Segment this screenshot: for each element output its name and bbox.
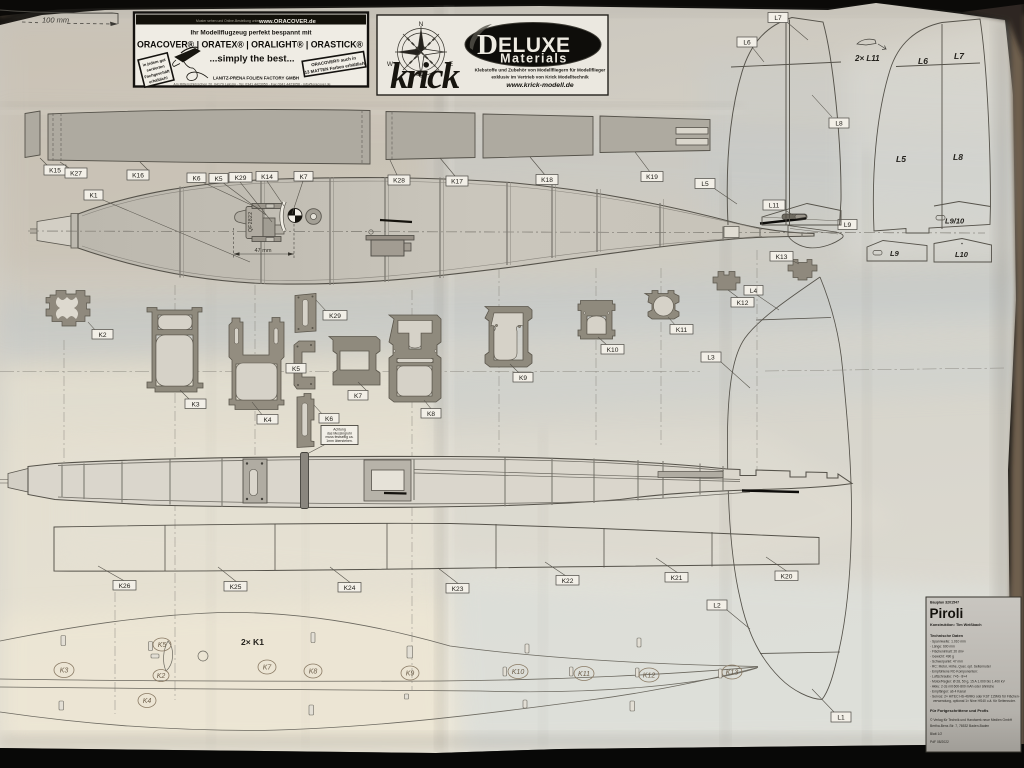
svg-text:L5: L5 [701, 181, 709, 188]
svg-text:L8: L8 [953, 152, 963, 162]
svg-text:L10: L10 [955, 250, 969, 259]
svg-text:K2: K2 [98, 332, 106, 339]
svg-text:Für Fortgeschrittene und Profi: Für Fortgeschrittene und Profis [930, 708, 988, 713]
svg-text:K6: K6 [325, 416, 333, 423]
svg-text:Materials: Materials [500, 52, 568, 66]
svg-text:K17: K17 [451, 179, 463, 186]
svg-text:· Empfohlene RC-Komponenten:: · Empfohlene RC-Komponenten: [930, 670, 978, 674]
svg-text:· Luftschraube: 7×6 - 8×4: · Luftschraube: 7×6 - 8×4 [930, 675, 967, 679]
svg-text:47 mm: 47 mm [254, 248, 271, 254]
svg-text:K6: K6 [192, 176, 200, 183]
svg-text:L2: L2 [713, 603, 721, 610]
svg-text:L7: L7 [954, 51, 965, 61]
svg-text:exklusiv im Vertrieb von Krick: exklusiv im Vertrieb von Krick Modelltec… [491, 75, 589, 80]
svg-text:Bertha-Benz-Str. 7, 76532 Bade: Bertha-Benz-Str. 7, 76532 Baden-Baden [930, 724, 989, 728]
svg-text:N: N [419, 21, 424, 28]
svg-text:Konstruktion: Tim Weißbach: Konstruktion: Tim Weißbach [930, 623, 982, 627]
svg-text:ORACOVER® | ORATEX® | ORALIGHT: ORACOVER® | ORATEX® | ORALIGHT® | ORASTI… [137, 40, 363, 50]
svg-text:100 mm: 100 mm [42, 16, 69, 25]
svg-text:K5: K5 [158, 642, 167, 649]
svg-text:K13: K13 [776, 254, 788, 261]
svg-text:Blatt 1/2: Blatt 1/2 [930, 732, 942, 736]
svg-text:L11: L11 [769, 203, 780, 210]
svg-text:· Motor/Regler: Ø 28, 50 g, 15: · Motor/Regler: Ø 28, 50 g, 15 A 1.000 b… [930, 680, 1006, 684]
svg-text:K12: K12 [643, 673, 656, 680]
svg-text:· Empfänger: ab 4 Kanal: · Empfänger: ab 4 Kanal [930, 690, 966, 694]
svg-text:K24: K24 [344, 585, 356, 592]
svg-text:K23: K23 [452, 586, 464, 593]
svg-text:K11: K11 [676, 327, 688, 334]
svg-text:K28: K28 [393, 178, 405, 185]
svg-text:K7: K7 [299, 174, 307, 181]
svg-text:Muster sehen und Online-Bestel: Muster sehen und Online-Bestellung unter [196, 19, 260, 23]
svg-text:Bauplan 3201547: Bauplan 3201547 [930, 601, 959, 605]
svg-text:K5: K5 [214, 176, 222, 183]
svg-text:2× K1: 2× K1 [241, 637, 264, 647]
svg-text:QF2822: QF2822 [248, 212, 254, 232]
svg-text:krick: krick [390, 56, 461, 97]
svg-text:K20: K20 [781, 574, 793, 581]
svg-text:K1: K1 [89, 193, 97, 200]
svg-text:L4: L4 [750, 288, 758, 295]
svg-text:· RC: Motor, Höhe, Quer, opt.: · RC: Motor, Höhe, Quer, opt. Seitenrude… [930, 665, 992, 669]
svg-text:K3: K3 [191, 402, 199, 409]
svg-text:· Schwerpunkt: 47 mm: · Schwerpunkt: 47 mm [930, 660, 963, 664]
svg-text:K27: K27 [70, 171, 82, 178]
svg-text:verwendung, optional 1× Nine H: verwendung, optional 1× Nine HS40 o.ä. f… [933, 699, 1016, 703]
svg-text:L7: L7 [774, 15, 782, 22]
svg-text:L5: L5 [896, 154, 906, 164]
svg-text:K11: K11 [578, 671, 590, 678]
svg-text:K15: K15 [49, 168, 61, 175]
svg-text:· Spannweite: 1.010 mm: · Spannweite: 1.010 mm [930, 640, 966, 644]
svg-text:L8: L8 [835, 121, 843, 128]
svg-text:· Akku: 2-3s mit 600-800 mAh o: · Akku: 2-3s mit 600-800 mAh oder ähnlic… [930, 685, 994, 689]
svg-text:K8: K8 [309, 669, 318, 676]
svg-text:LANITZ-PRENA FOLIEN FACTORY GM: LANITZ-PRENA FOLIEN FACTORY GMBH [213, 76, 299, 81]
svg-text:L1: L1 [837, 715, 845, 722]
svg-text:PdF 08/2022: PdF 08/2022 [930, 740, 949, 744]
svg-text:© Verlag für Technik und Handw: © Verlag für Technik und Handwerk neue M… [930, 718, 1013, 722]
svg-text:K18: K18 [541, 177, 553, 184]
svg-text:2× L11: 2× L11 [854, 54, 880, 63]
svg-text:L6: L6 [918, 56, 928, 66]
svg-text:Technische Daten: Technische Daten [930, 633, 964, 638]
svg-text:K29: K29 [235, 175, 247, 182]
svg-text:K10: K10 [512, 669, 525, 676]
svg-text:L9: L9 [844, 222, 852, 229]
svg-text:Am Ritterschlösschen 20, 04179: Am Ritterschlösschen 20, 04179 Leipzig ·… [173, 83, 330, 87]
svg-text:K29: K29 [329, 313, 341, 320]
svg-text:K13: K13 [726, 670, 739, 677]
svg-text:K22: K22 [562, 578, 574, 585]
svg-text:K4: K4 [263, 417, 271, 424]
svg-text:K9: K9 [519, 375, 527, 382]
svg-text:K3: K3 [60, 668, 69, 675]
svg-text:K2: K2 [157, 673, 166, 680]
svg-text:L9/10: L9/10 [945, 217, 965, 226]
svg-text:L3: L3 [707, 355, 715, 362]
svg-text:· Flächeninhalt: 20 dm²: · Flächeninhalt: 20 dm² [930, 650, 965, 654]
svg-text:K5: K5 [292, 366, 300, 373]
svg-text:K7: K7 [354, 393, 362, 400]
svg-text:K12: K12 [737, 300, 749, 307]
svg-text:Piroli: Piroli [930, 606, 964, 621]
svg-text:D: D [477, 29, 498, 61]
svg-text:...simply the best...: ...simply the best... [210, 54, 295, 65]
svg-text:K19: K19 [646, 174, 658, 181]
svg-text:· Gewicht: 490 g: · Gewicht: 490 g [930, 655, 954, 659]
svg-text:1mm überstehen.: 1mm überstehen. [326, 439, 352, 443]
svg-text:K4: K4 [143, 698, 152, 705]
svg-text:K25: K25 [230, 584, 242, 591]
svg-text:www.krick-modell.de: www.krick-modell.de [506, 82, 574, 89]
svg-text:K21: K21 [671, 575, 683, 582]
svg-text:K26: K26 [119, 583, 131, 590]
svg-text:· Länge: 600 mm: · Länge: 600 mm [930, 645, 955, 649]
svg-text:www.ORACOVER.de: www.ORACOVER.de [258, 19, 317, 25]
svg-text:K7: K7 [263, 665, 273, 672]
svg-text:L9: L9 [890, 249, 900, 258]
svg-text:K16: K16 [132, 173, 144, 180]
svg-text:K10: K10 [607, 347, 619, 354]
svg-text:K8: K8 [427, 411, 435, 418]
svg-text:K14: K14 [261, 174, 273, 181]
svg-text:Ihr Modellflugzeug perfekt bes: Ihr Modellflugzeug perfekt bespannt mit [190, 30, 312, 37]
svg-text:· Servos: 2× HiTEC HS-40/MG od: · Servos: 2× HiTEC HS-40/MG oder KST 115… [930, 695, 1020, 699]
svg-text:Klebstoffe und Zubehör von Mod: Klebstoffe und Zubehör von Modellflieger… [475, 68, 606, 73]
svg-text:K9: K9 [406, 671, 415, 678]
svg-text:L6: L6 [743, 40, 751, 47]
